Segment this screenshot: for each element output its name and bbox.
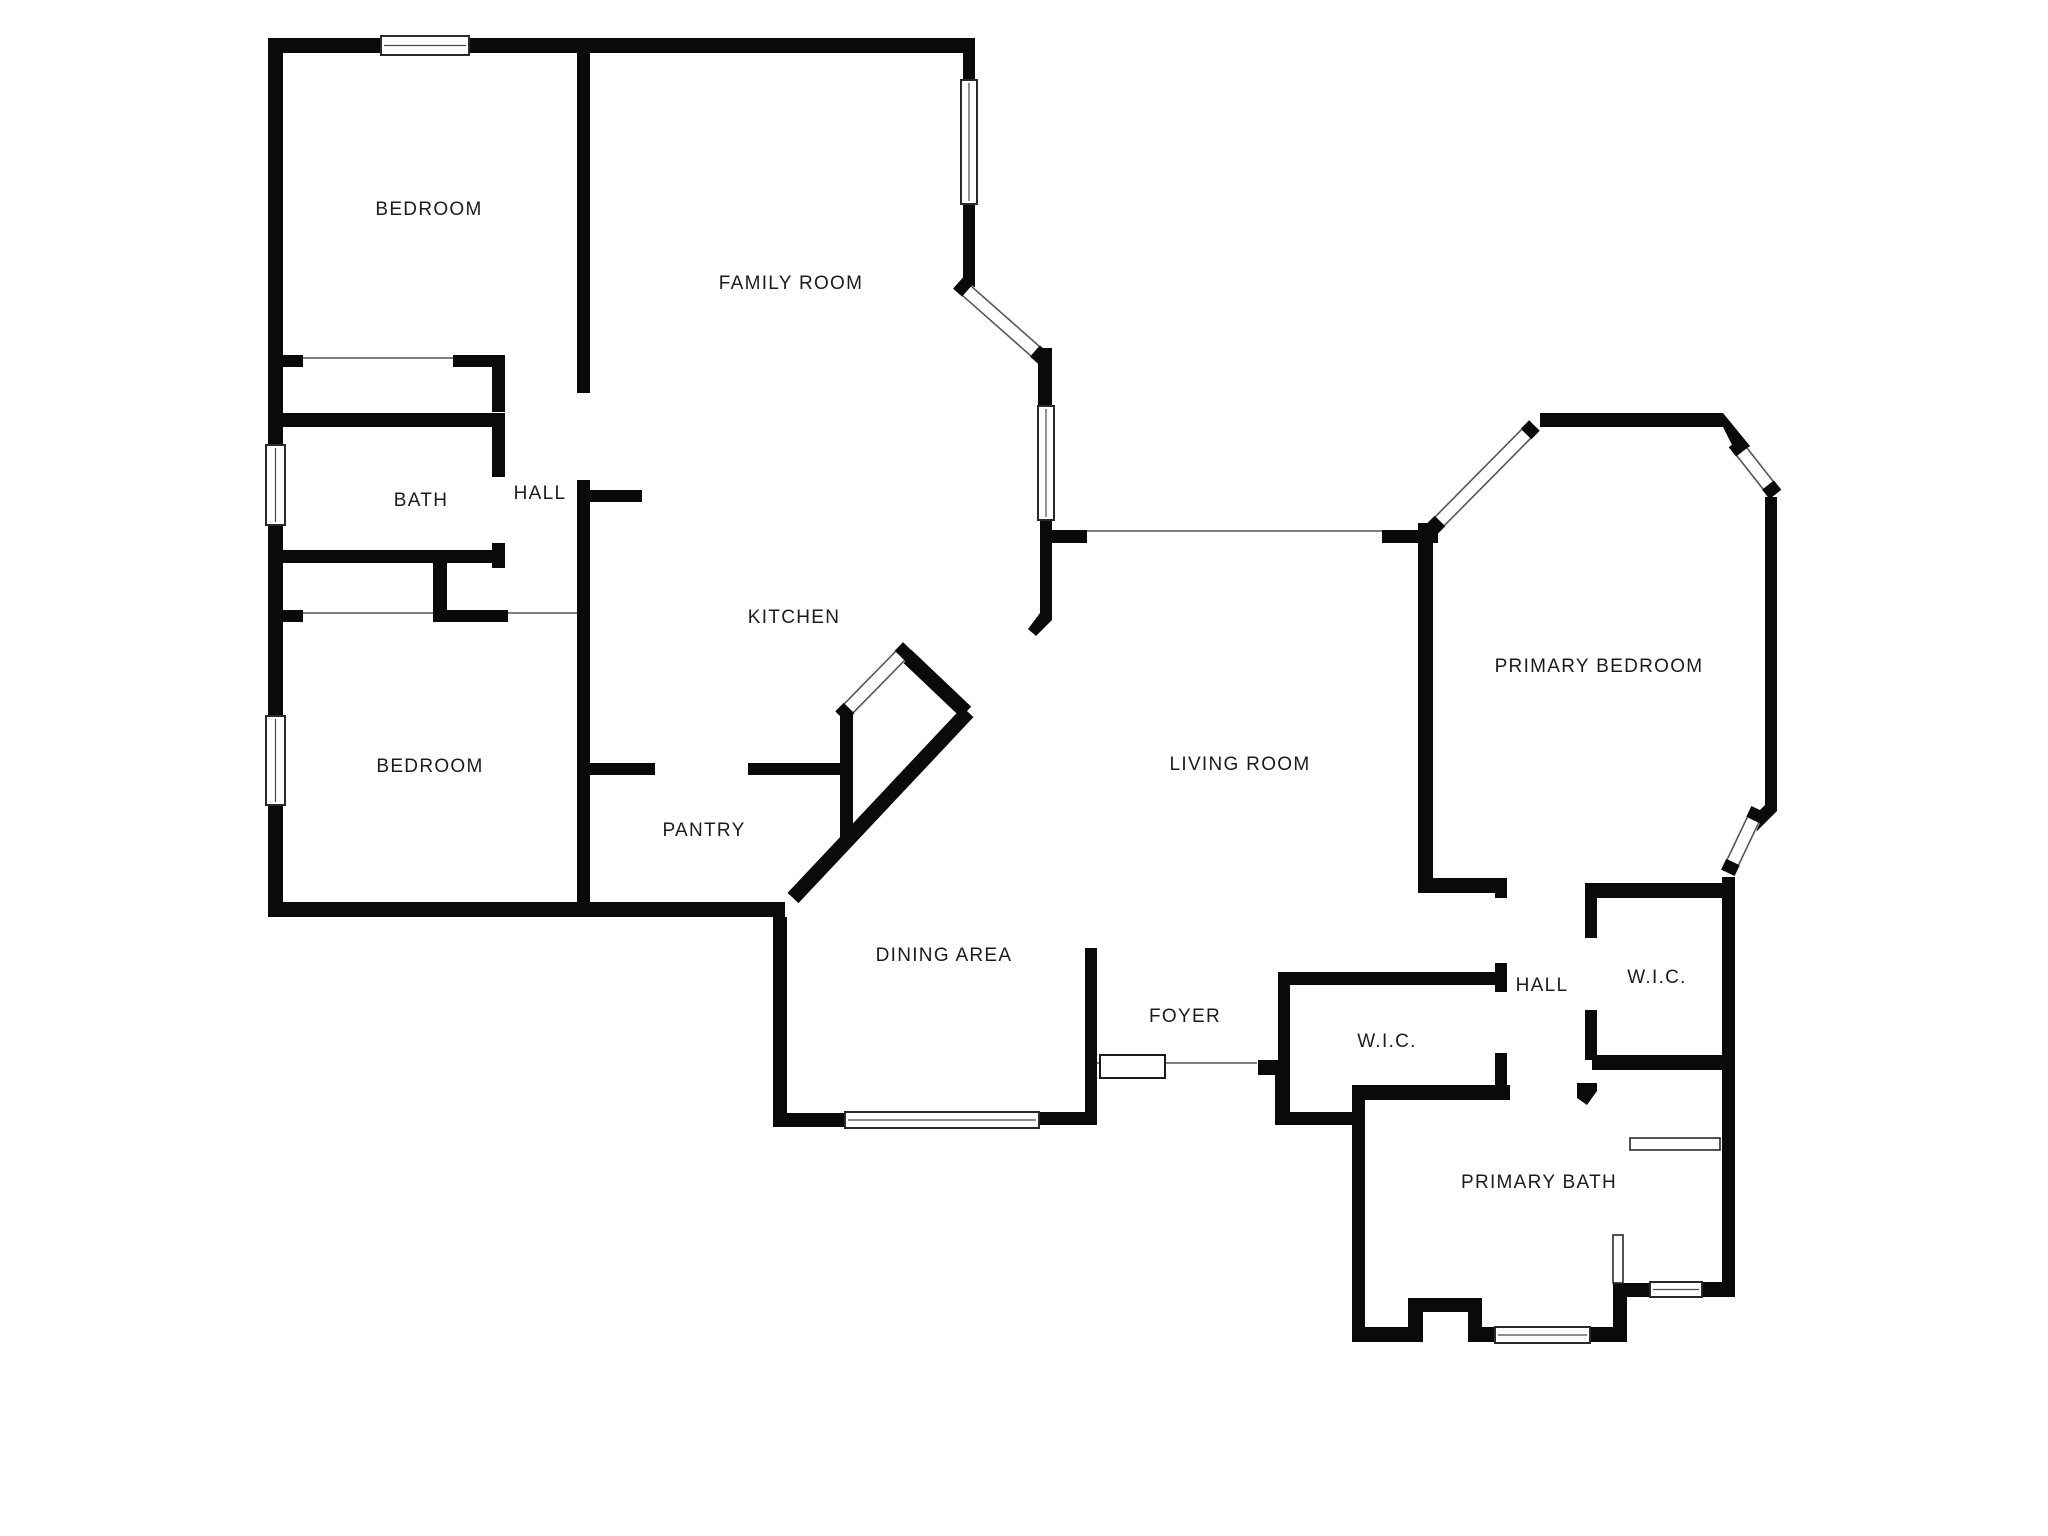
room-label-primary-bath: PRIMARY BATH (1461, 1172, 1617, 1194)
room-label-hall-left: HALL (514, 483, 567, 505)
room-label-pantry: PANTRY (662, 820, 745, 842)
room-label-family-room: FAMILY ROOM (719, 273, 864, 295)
room-label-bath: BATH (394, 490, 448, 512)
room-label-foyer: FOYER (1149, 1006, 1221, 1028)
room-label-wic-right: W.I.C. (1627, 967, 1687, 989)
walls-layer (268, 38, 1777, 1342)
room-label-hall-right: HALL (1516, 975, 1569, 997)
room-label-dining-area: DINING AREA (876, 945, 1013, 967)
room-label-bedroom-2: BEDROOM (376, 756, 483, 778)
windows-layer (266, 36, 1775, 1343)
room-label-bedroom-1: BEDROOM (375, 199, 482, 221)
room-label-kitchen: KITCHEN (748, 607, 841, 629)
room-label-living-room: LIVING ROOM (1170, 754, 1311, 776)
room-label-primary-bedroom: PRIMARY BEDROOM (1495, 656, 1704, 678)
floor-plan: BEDROOM FAMILY ROOM BATH HALL KITCHEN BE… (0, 0, 2048, 1536)
floor-plan-drawing (0, 0, 2048, 1536)
shower-glass-icon (1613, 1235, 1623, 1283)
bath-shelf-icon (1630, 1138, 1720, 1150)
room-label-wic-left: W.I.C. (1357, 1031, 1417, 1053)
front-door-icon (1100, 1055, 1165, 1078)
